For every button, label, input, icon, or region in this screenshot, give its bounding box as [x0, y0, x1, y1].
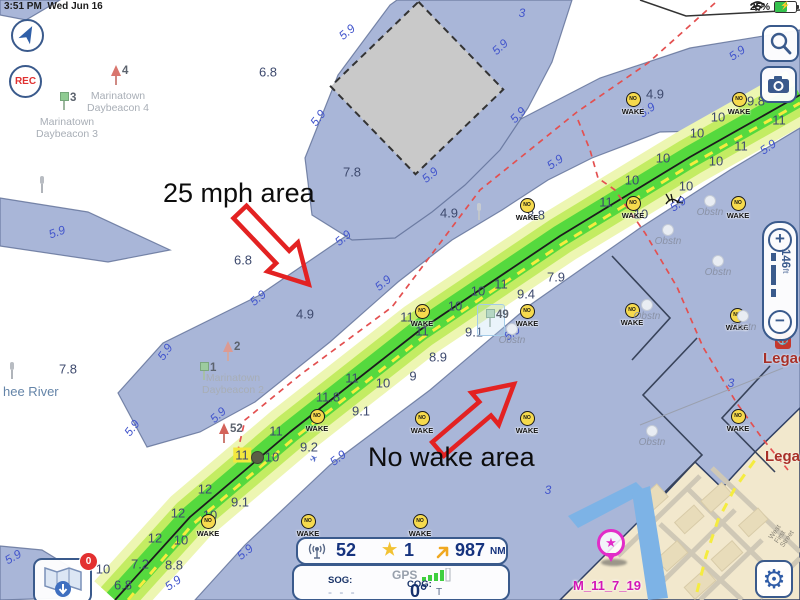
cog-value: 0° — [410, 581, 427, 600]
gear-icon: ⚙ — [762, 564, 785, 594]
clock: 3:51 PM Wed Jun 16 — [4, 1, 103, 12]
search-button[interactable] — [762, 25, 799, 62]
camera-icon — [762, 68, 795, 101]
charging-bolt-icon: ⚡ — [780, 1, 790, 10]
star-count: 1 — [404, 540, 414, 561]
gps-nav-panel[interactable]: SOG: - - - GPS COG: 0° T — [292, 564, 510, 600]
record-track-button[interactable]: REC — [9, 65, 42, 98]
distance-unit: NM — [490, 546, 506, 557]
waypoint-marker[interactable]: ★ — [597, 529, 625, 557]
no-wake-annotation: No wake area — [368, 442, 535, 473]
route-info-panel[interactable]: 52 ★ 1 987 NM — [296, 537, 508, 565]
location-arrow-icon — [750, 1, 760, 11]
scale-ruler — [771, 253, 776, 309]
track-antenna-icon — [304, 540, 330, 562]
star-icon: ★ — [382, 540, 397, 560]
zoom-out-button[interactable]: − — [768, 310, 792, 334]
chart-app-screen: 6.87.86.84.94.94.99.87.81011101110101010… — [0, 0, 800, 600]
cog-unit: T — [436, 587, 442, 598]
zoom-control: + − 146ft — [762, 221, 798, 341]
chart-download-button[interactable]: 0 — [33, 558, 92, 600]
distance-arrow-icon — [436, 543, 452, 559]
course-up-button[interactable] — [11, 19, 44, 52]
annotation-arrow-layer — [0, 0, 800, 600]
battery-icon: ⚡ — [774, 1, 797, 13]
waypoint-pin-tail — [606, 553, 616, 562]
map-scale-label: 146ft — [779, 249, 791, 274]
navigation-arrow-icon — [13, 21, 42, 50]
search-icon — [764, 27, 797, 60]
speed-area-annotation: 25 mph area — [163, 178, 315, 209]
distance-value: 987 — [455, 540, 485, 561]
status-bar: 3:51 PM Wed Jun 16 25% ⚡ — [0, 0, 800, 16]
camera-button[interactable] — [760, 66, 797, 103]
sog-value: - - - — [328, 585, 357, 599]
settings-button[interactable]: ⚙ — [755, 560, 793, 598]
waypoint-label: M_11_7_19 — [573, 578, 641, 593]
speed-area-arrow — [225, 198, 324, 299]
download-count-badge: 0 — [79, 552, 98, 571]
track-count: 52 — [336, 540, 356, 561]
